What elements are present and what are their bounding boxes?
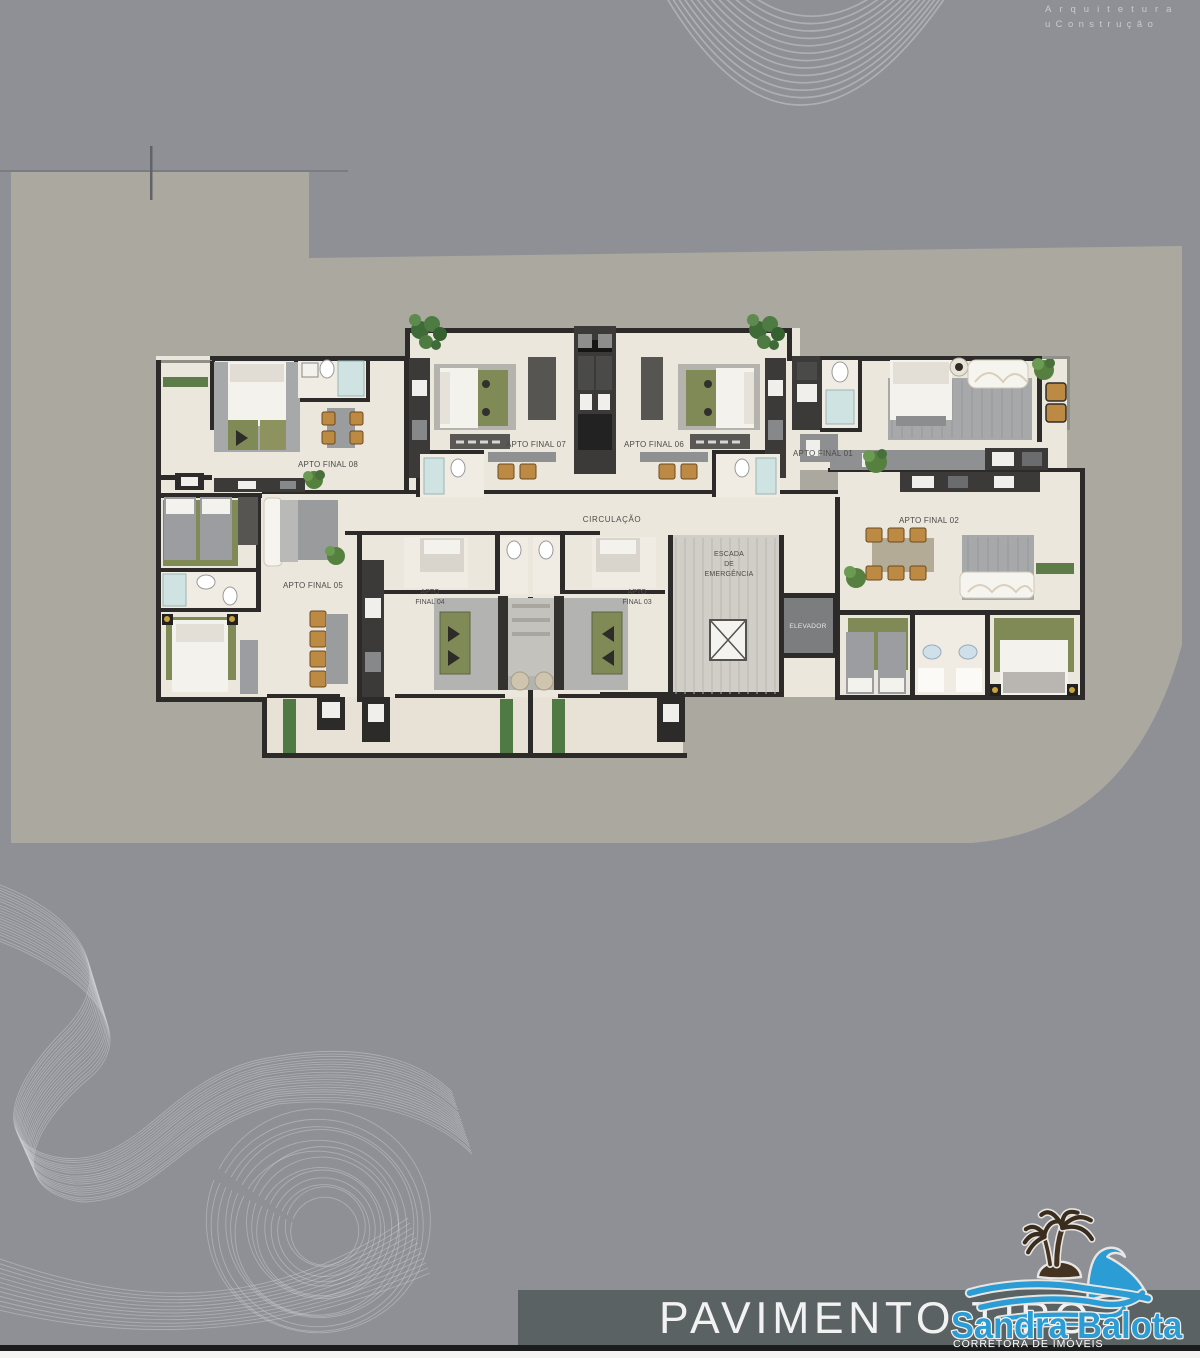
svg-text:EMERGÊNCIA: EMERGÊNCIA xyxy=(704,569,753,578)
svg-text:Arquitetura: Arquitetura xyxy=(1045,4,1179,15)
svg-text:APTO: APTO xyxy=(628,589,647,596)
svg-text:FINAL 03: FINAL 03 xyxy=(622,599,651,606)
svg-text:APTO FINAL 05: APTO FINAL 05 xyxy=(283,581,343,590)
svg-text:APTO FINAL 02: APTO FINAL 02 xyxy=(899,516,959,525)
svg-text:ESCADA: ESCADA xyxy=(714,551,744,558)
svg-text:FINAL 04: FINAL 04 xyxy=(415,599,444,606)
svg-text:ELEVADOR: ELEVADOR xyxy=(789,623,826,630)
svg-text:CIRCULAÇÃO: CIRCULAÇÃO xyxy=(583,515,641,524)
svg-text:APTO: APTO xyxy=(421,589,440,596)
svg-text:CORRETORA DE IMÓVEIS: CORRETORA DE IMÓVEIS xyxy=(953,1337,1104,1350)
svg-text:APTO FINAL 08: APTO FINAL 08 xyxy=(298,460,358,469)
svg-text:APTO FINAL 07: APTO FINAL 07 xyxy=(506,440,566,449)
svg-text:DE: DE xyxy=(724,561,734,568)
svg-text:APTO FINAL 06: APTO FINAL 06 xyxy=(624,440,684,449)
svg-text:uConstrução: uConstrução xyxy=(1045,19,1158,30)
svg-text:APTO FINAL 01: APTO FINAL 01 xyxy=(793,449,853,458)
